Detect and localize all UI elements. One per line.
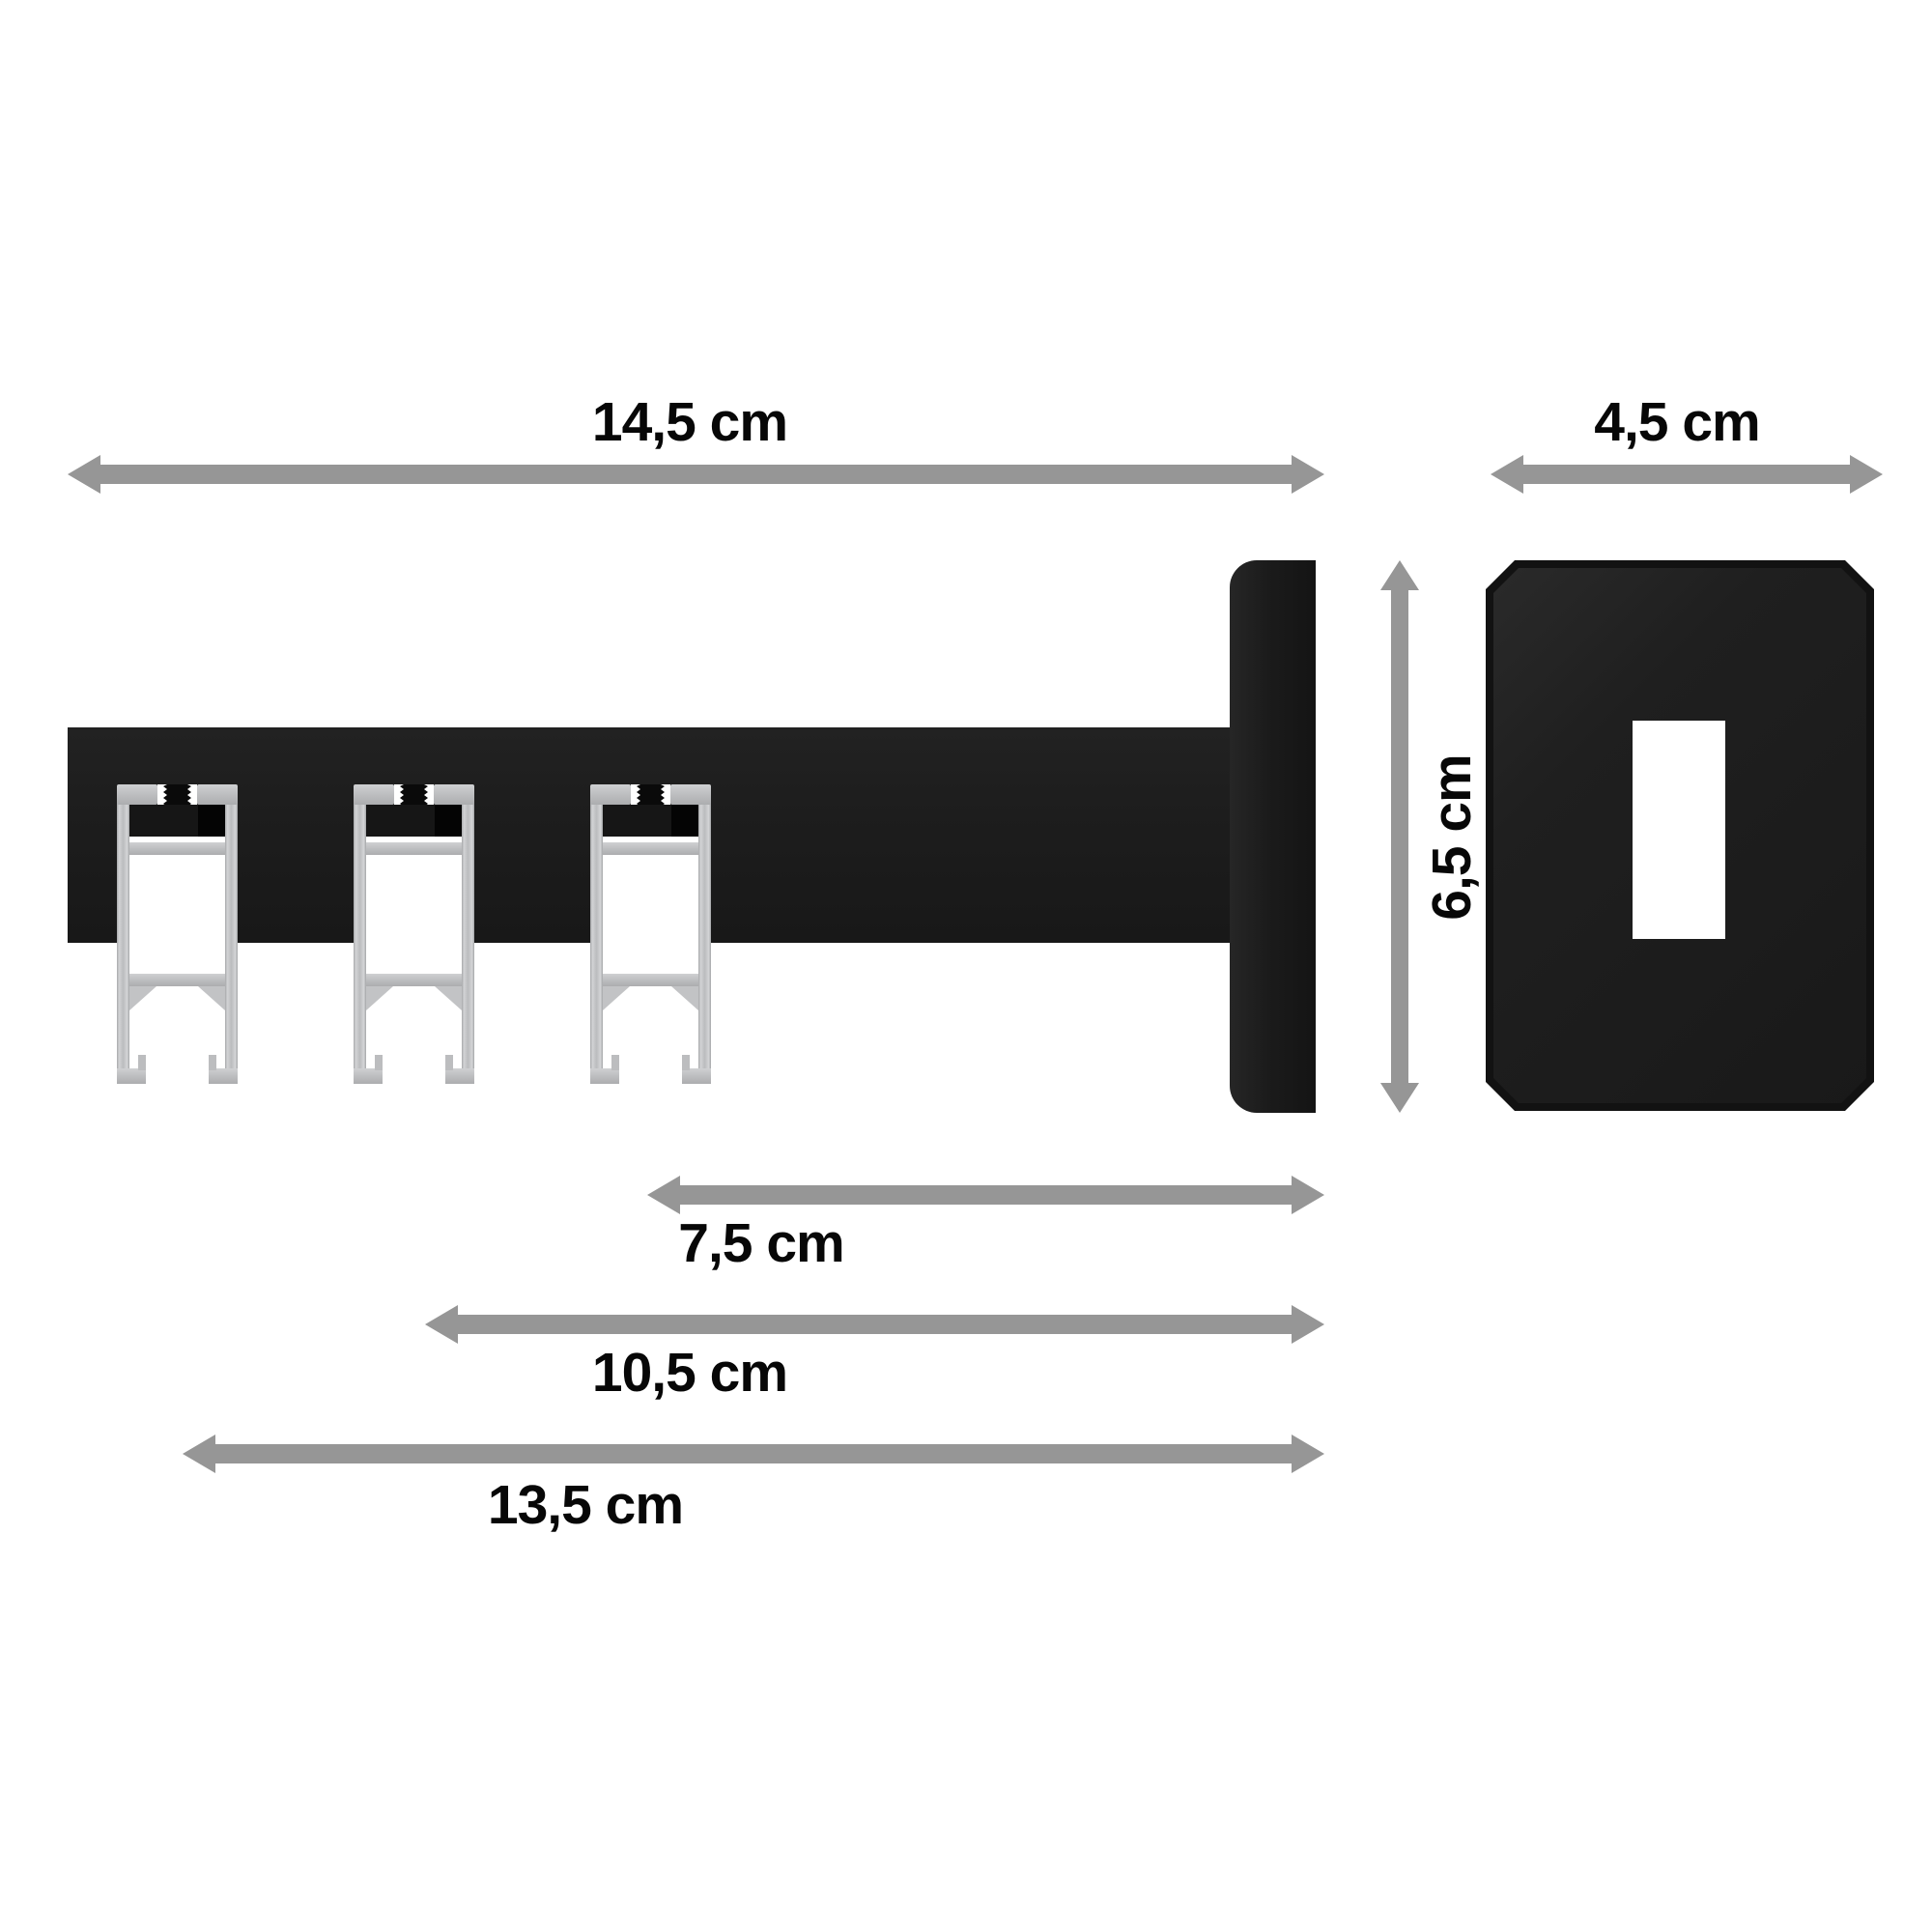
rail-wall-right: [225, 786, 238, 1084]
rail-slot-shadow-dark: [198, 805, 225, 837]
wall-plate-side-view: [1230, 560, 1316, 1113]
rail-track-profile-3: [590, 784, 711, 1084]
rail-track-profile-1: [117, 784, 238, 1084]
arrowhead-right-icon: [1850, 455, 1883, 494]
arrow-shaft: [1391, 585, 1408, 1088]
arrow-shaft: [95, 465, 1297, 484]
arrowhead-right-icon: [1292, 1176, 1324, 1214]
rail-cap-left: [117, 784, 157, 805]
rail-foot-left: [117, 1068, 146, 1084]
wall-plate-front-view: [1486, 560, 1874, 1111]
screw-thread-icon: [400, 784, 428, 807]
screw-thread-icon: [637, 784, 665, 807]
arrowhead-right-icon: [1292, 1435, 1324, 1473]
arrowhead-right-icon: [1292, 455, 1324, 494]
rail-hook-right: [209, 1055, 216, 1070]
arrow-shaft: [674, 1185, 1297, 1205]
rail-cap-right: [197, 784, 238, 805]
dimension-arrow-distance-1: [647, 1176, 1324, 1214]
dimension-label-plate-width: 4,5 cm: [1532, 393, 1822, 451]
rail-wall-left: [117, 786, 129, 1084]
dimension-label-distance-3: 13,5 cm: [440, 1476, 730, 1534]
dimension-arrow-total-length: [68, 455, 1324, 494]
rail-hook-left: [138, 1055, 146, 1070]
dimension-diagram: 14,5 cm 4,5 cm 6,5 cm: [0, 0, 1932, 1932]
rail-foot-right: [209, 1068, 238, 1084]
dimension-arrow-distance-3: [183, 1435, 1324, 1473]
rail-web-bottom: [129, 974, 225, 986]
mounting-hole: [1633, 721, 1725, 939]
arrowhead-right-icon: [1292, 1305, 1324, 1344]
dimension-label-total-length: 14,5 cm: [545, 393, 835, 451]
dimension-label-distance-2: 10,5 cm: [545, 1344, 835, 1402]
dimension-arrow-distance-2: [425, 1305, 1324, 1344]
arrow-shaft: [1518, 465, 1856, 484]
arrow-shaft: [452, 1315, 1297, 1334]
dimension-arrow-plate-height: [1380, 560, 1419, 1113]
arrowhead-down-icon: [1380, 1083, 1419, 1113]
rail-gap-line: [129, 837, 225, 842]
arrow-shaft: [210, 1444, 1297, 1463]
rail-web-top: [129, 842, 225, 855]
rail-cavity: [129, 855, 225, 974]
dimension-label-plate-height: 6,5 cm: [1423, 693, 1481, 982]
dimension-label-distance-1: 7,5 cm: [616, 1214, 906, 1272]
screw-thread-icon: [163, 784, 191, 807]
dimension-arrow-plate-width: [1491, 455, 1883, 494]
rail-track-profile-2: [354, 784, 474, 1084]
